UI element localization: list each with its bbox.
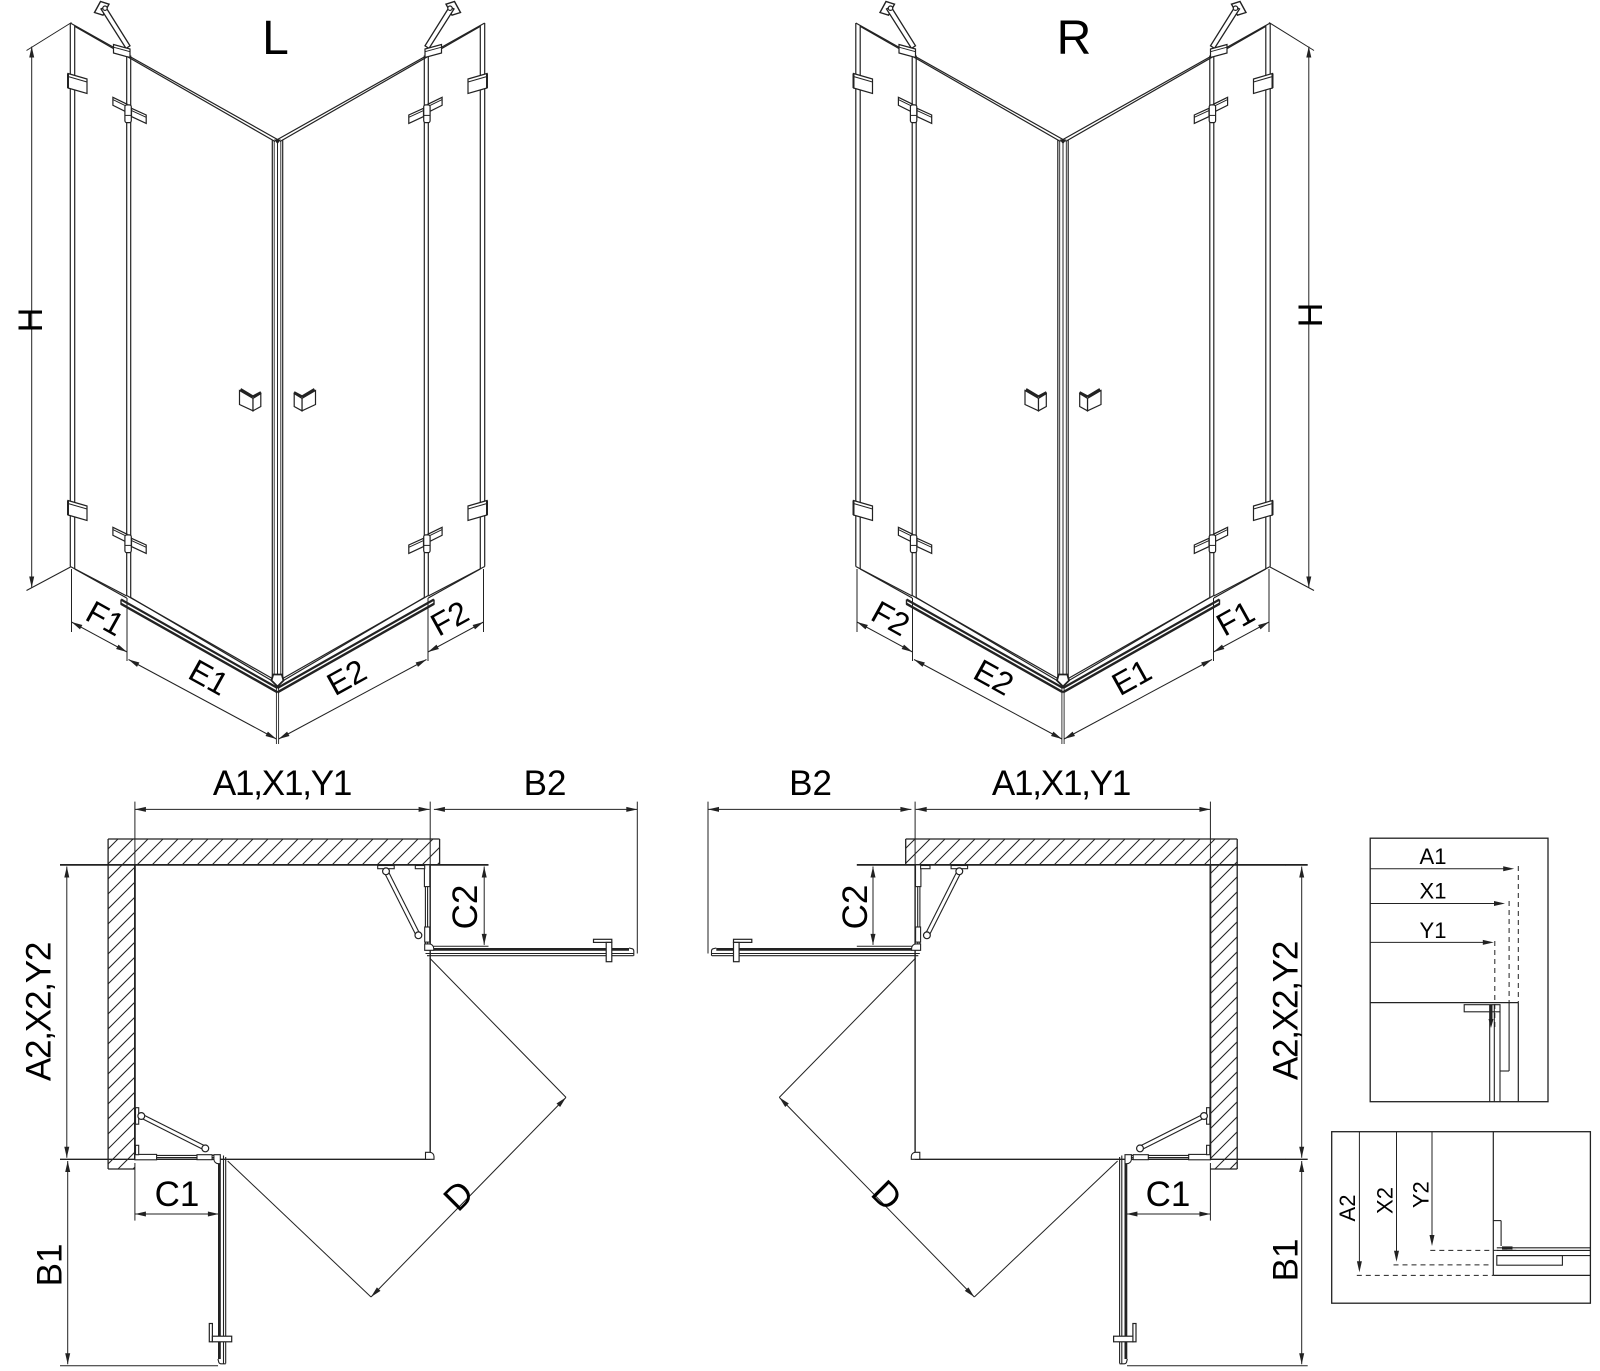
- svg-text:C2: C2: [836, 885, 875, 930]
- svg-text:H: H: [12, 308, 50, 333]
- svg-text:R: R: [1057, 12, 1092, 65]
- svg-text:H: H: [1292, 303, 1330, 328]
- svg-text:Y1: Y1: [1420, 918, 1447, 943]
- svg-text:A2: A2: [1335, 1195, 1360, 1222]
- svg-text:C1: C1: [155, 1175, 200, 1214]
- svg-text:A1: A1: [1420, 844, 1447, 869]
- svg-text:X2: X2: [1373, 1187, 1398, 1214]
- svg-text:Y2: Y2: [1408, 1181, 1433, 1208]
- svg-text:A2,X2,Y2: A2,X2,Y2: [20, 943, 59, 1081]
- svg-text:L: L: [262, 12, 289, 65]
- svg-text:B2: B2: [789, 764, 832, 803]
- svg-text:C1: C1: [1146, 1175, 1191, 1214]
- svg-text:X1: X1: [1420, 879, 1447, 904]
- svg-text:A2,X2,Y2: A2,X2,Y2: [1266, 942, 1305, 1080]
- svg-text:C2: C2: [446, 885, 485, 930]
- svg-text:B1: B1: [1266, 1239, 1305, 1282]
- svg-text:B1: B1: [31, 1244, 70, 1287]
- svg-text:A1,X1,Y1: A1,X1,Y1: [992, 764, 1130, 803]
- svg-text:B2: B2: [524, 764, 567, 803]
- svg-text:A1,X1,Y1: A1,X1,Y1: [213, 764, 351, 803]
